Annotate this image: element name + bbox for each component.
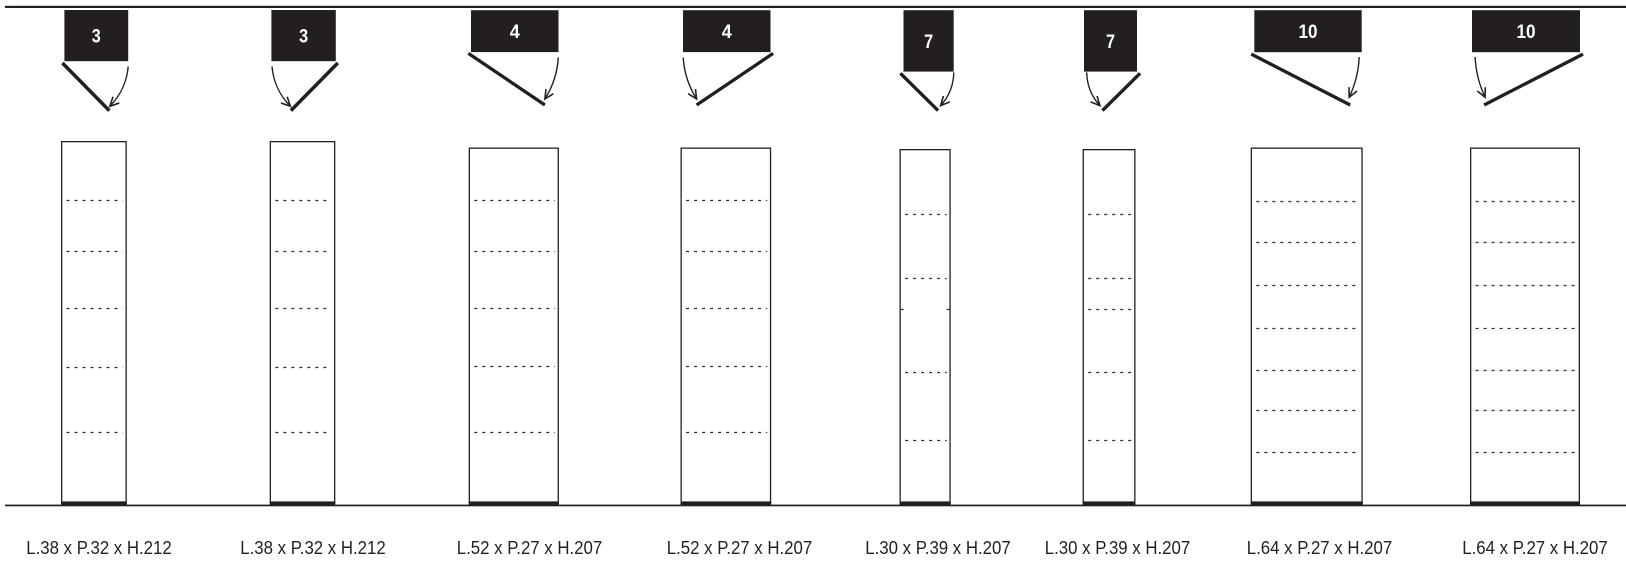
svg-text:10: 10 bbox=[1299, 22, 1318, 43]
svg-text:L.30 x P.39 x H.207: L.30 x P.39 x H.207 bbox=[865, 538, 1010, 558]
svg-text:10: 10 bbox=[1517, 22, 1536, 43]
svg-text:4: 4 bbox=[510, 22, 520, 43]
svg-text:L.38 x P.32 x H.212: L.38 x P.32 x H.212 bbox=[240, 538, 385, 558]
svg-text:L.64 x P.27 x H.207: L.64 x P.27 x H.207 bbox=[1247, 538, 1392, 558]
svg-text:3: 3 bbox=[92, 27, 101, 48]
svg-text:7: 7 bbox=[924, 32, 933, 53]
svg-text:4: 4 bbox=[722, 22, 732, 43]
svg-text:L.52 x P.27 x H.207: L.52 x P.27 x H.207 bbox=[667, 538, 812, 558]
svg-text:3: 3 bbox=[299, 27, 308, 48]
svg-text:7: 7 bbox=[1106, 32, 1115, 53]
svg-text:L.30 x P.39 x H.207: L.30 x P.39 x H.207 bbox=[1045, 538, 1190, 558]
svg-text:L.64 x P.27 x H.207: L.64 x P.27 x H.207 bbox=[1462, 538, 1607, 558]
svg-text:L.38 x P.32 x H.212: L.38 x P.32 x H.212 bbox=[26, 538, 171, 558]
svg-text:L.52 x P.27 x H.207: L.52 x P.27 x H.207 bbox=[457, 538, 602, 558]
